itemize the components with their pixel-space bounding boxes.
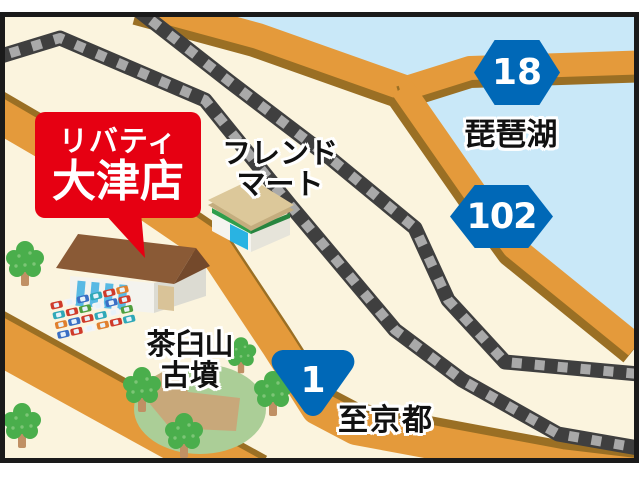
route-18-number: 18	[492, 52, 542, 93]
label-kofun-line2: 古墳	[130, 360, 250, 391]
tree-icon	[6, 241, 44, 286]
label-kofun-line1: 茶臼山	[130, 329, 250, 360]
label-friend-mart: フレンド マート	[205, 138, 355, 201]
map-screenshot: リバティ 大津店 琵琶湖 フレンド マート 茶臼山 古墳 至京都 18 102 …	[0, 0, 640, 480]
label-lake-biwa: 琵琶湖	[445, 119, 577, 152]
label-chausuyama-kofun: 茶臼山 古墳	[130, 329, 250, 392]
route-1-number: 1	[300, 360, 325, 401]
label-friend-mart-line1: フレンド	[205, 138, 355, 169]
tree-icon	[5, 403, 41, 448]
callout-tail	[95, 212, 155, 262]
parking-lot	[50, 285, 136, 339]
route-1-badge: 1	[268, 344, 356, 420]
route-102-number: 102	[466, 197, 536, 237]
store-callout-bubble: リバティ 大津店	[35, 112, 201, 218]
store-name-line1: リバティ	[59, 127, 177, 156]
label-friend-mart-line2: マート	[205, 169, 355, 200]
store-name-line2: 大津店	[52, 160, 184, 204]
